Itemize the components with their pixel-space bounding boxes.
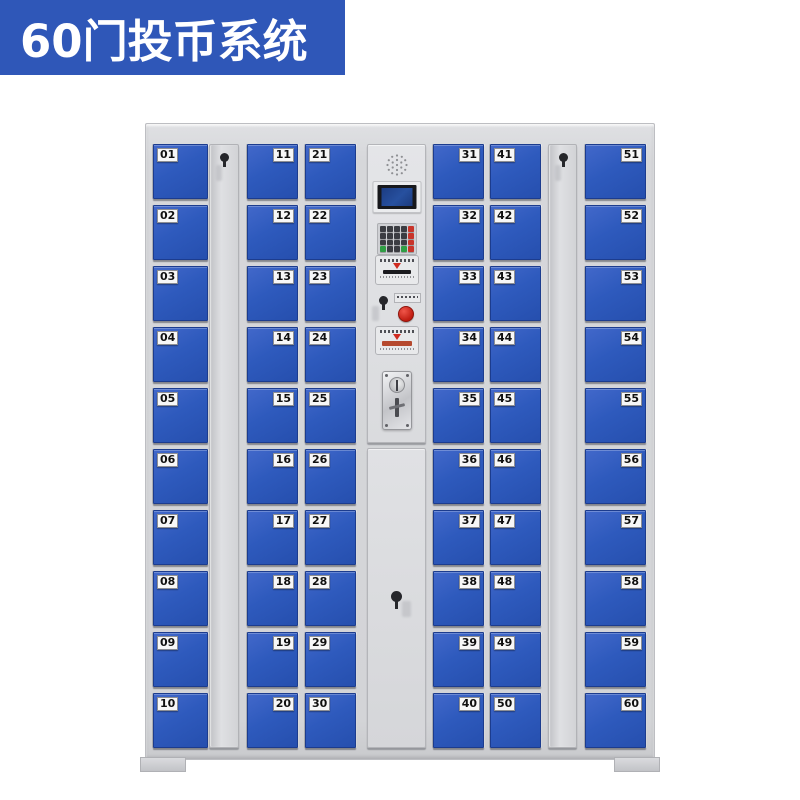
- screw-icon: [385, 424, 388, 427]
- screw-icon: [406, 424, 409, 427]
- locker-door-30[interactable]: 30: [305, 693, 356, 748]
- product-image: 60门投币系统 01020304050607080910 11121314151…: [0, 0, 800, 800]
- keypad-key[interactable]: [394, 226, 400, 232]
- door-number-label: 06: [157, 453, 178, 467]
- door-number-label: 17: [273, 514, 294, 528]
- locker-door-02[interactable]: 02: [153, 205, 208, 260]
- door-number-label: 50: [494, 697, 515, 711]
- coin-slot-knob[interactable]: [389, 377, 405, 393]
- locker-door-38[interactable]: 38: [433, 571, 484, 626]
- locker-door-17[interactable]: 17: [247, 510, 298, 565]
- door-number-label: 10: [157, 697, 178, 711]
- door-number-label: 46: [494, 453, 515, 467]
- door-number-label: 30: [309, 697, 330, 711]
- door-number-label: 02: [157, 209, 178, 223]
- down-arrow-icon: [393, 263, 401, 269]
- door-number-label: 22: [309, 209, 330, 223]
- keypad-key[interactable]: [401, 233, 407, 239]
- product-banner: 60门投币系统: [0, 0, 345, 75]
- locker-door-05[interactable]: 05: [153, 388, 208, 443]
- locker-door-27[interactable]: 27: [305, 510, 356, 565]
- door-number-label: 45: [494, 392, 515, 406]
- sticker-subtext: [380, 276, 414, 278]
- locker-door-18[interactable]: 18: [247, 571, 298, 626]
- locker-door-41[interactable]: 41: [490, 144, 541, 199]
- door-column-5: 41424344454647484950: [490, 144, 541, 748]
- keypad-key[interactable]: [408, 240, 414, 246]
- door-number-label: 09: [157, 636, 178, 650]
- door-number-label: 53: [621, 270, 642, 284]
- locker-door-48[interactable]: 48: [490, 571, 541, 626]
- door-number-label: 25: [309, 392, 330, 406]
- locker-door-16[interactable]: 16: [247, 449, 298, 504]
- locker-door-24[interactable]: 24: [305, 327, 356, 382]
- keypad-key[interactable]: [387, 226, 393, 232]
- door-number-label: 60: [621, 697, 642, 711]
- door-number-label: 29: [309, 636, 330, 650]
- keypad-key[interactable]: [408, 246, 414, 252]
- keypad-key[interactable]: [380, 246, 386, 252]
- locker-door-42[interactable]: 42: [490, 205, 541, 260]
- locker-door-54[interactable]: 54: [585, 327, 646, 382]
- lcd-display: [372, 181, 421, 213]
- door-number-label: 26: [309, 453, 330, 467]
- door-number-label: 47: [494, 514, 515, 528]
- sticker-text: [397, 296, 418, 298]
- door-number-label: 56: [621, 453, 642, 467]
- locker-door-26[interactable]: 26: [305, 449, 356, 504]
- panel-lock-row: [368, 292, 425, 326]
- control-column: [367, 144, 426, 748]
- card-slot[interactable]: [383, 270, 411, 274]
- keypad-key[interactable]: [394, 246, 400, 252]
- keyhole-icon[interactable]: [559, 153, 568, 162]
- keypad-key[interactable]: [380, 226, 386, 232]
- locker-door-60[interactable]: 60: [585, 693, 646, 748]
- locker-door-43[interactable]: 43: [490, 266, 541, 321]
- locker-door-11[interactable]: 11: [247, 144, 298, 199]
- door-number-label: 08: [157, 575, 178, 589]
- door-column-6: 51525354555657585960: [585, 144, 646, 748]
- keypad-key[interactable]: [394, 233, 400, 239]
- screw-icon: [406, 374, 409, 377]
- locker-door-51[interactable]: 51: [585, 144, 646, 199]
- locker-door-12[interactable]: 12: [247, 205, 298, 260]
- hanging-key: [372, 306, 379, 321]
- door-number-label: 59: [621, 636, 642, 650]
- locker-door-55[interactable]: 55: [585, 388, 646, 443]
- sticker-red-strip: [382, 341, 412, 346]
- locker-door-35[interactable]: 35: [433, 388, 484, 443]
- keypad-key[interactable]: [401, 226, 407, 232]
- locker-door-58[interactable]: 58: [585, 571, 646, 626]
- keyhole-icon[interactable]: [220, 153, 229, 162]
- keypad-key[interactable]: [387, 246, 393, 252]
- door-number-label: 55: [621, 392, 642, 406]
- door-column-2: 11121314151617181920: [247, 144, 298, 748]
- door-number-label: 41: [494, 148, 515, 162]
- door-number-label: 33: [459, 270, 480, 284]
- locker-door-19[interactable]: 19: [247, 632, 298, 687]
- locker-door-07[interactable]: 07: [153, 510, 208, 565]
- button-label-sticker: [394, 293, 421, 303]
- locker-door-14[interactable]: 14: [247, 327, 298, 382]
- door-number-label: 28: [309, 575, 330, 589]
- door-number-label: 54: [621, 331, 642, 345]
- keypad-key[interactable]: [408, 233, 414, 239]
- side-lock-panel-right: [548, 144, 577, 748]
- instruction-sticker: [375, 326, 419, 355]
- keypad-key[interactable]: [380, 240, 386, 246]
- control-panel: [367, 144, 426, 443]
- door-number-label: 12: [273, 209, 294, 223]
- screw-icon: [385, 374, 388, 377]
- keypad-key[interactable]: [408, 226, 414, 232]
- speaker-grill-icon: [384, 152, 410, 178]
- door-number-label: 14: [273, 331, 294, 345]
- door-number-label: 48: [494, 575, 515, 589]
- lcd-bezel: [377, 185, 416, 209]
- door-number-label: 43: [494, 270, 515, 284]
- cabinet-foot-right: [614, 757, 660, 772]
- locker-door-40[interactable]: 40: [433, 693, 484, 748]
- locker-cabinet: 01020304050607080910 1112131415161718192…: [145, 123, 655, 760]
- door-number-label: 52: [621, 209, 642, 223]
- door-number-label: 51: [621, 148, 642, 162]
- door-number-label: 04: [157, 331, 178, 345]
- door-number-label: 24: [309, 331, 330, 345]
- door-column-1: 01020304050607080910: [153, 144, 208, 748]
- door-number-label: 11: [273, 148, 294, 162]
- coin-acceptor[interactable]: [382, 371, 412, 430]
- hanging-key: [216, 165, 222, 181]
- hanging-key: [402, 601, 411, 617]
- lcd-screen: [381, 188, 412, 206]
- hanging-key: [555, 165, 561, 181]
- sticker-text: [380, 330, 414, 333]
- keypad-key[interactable]: [387, 240, 393, 246]
- door-number-label: 23: [309, 270, 330, 284]
- locker-door-20[interactable]: 20: [247, 693, 298, 748]
- locker-door-34[interactable]: 34: [433, 327, 484, 382]
- locker-door-23[interactable]: 23: [305, 266, 356, 321]
- banner-title: 60门投币系统: [20, 5, 308, 70]
- locker-door-10[interactable]: 10: [153, 693, 208, 748]
- locker-door-52[interactable]: 52: [585, 205, 646, 260]
- door-number-label: 01: [157, 148, 178, 162]
- locker-door-31[interactable]: 31: [433, 144, 484, 199]
- locker-door-44[interactable]: 44: [490, 327, 541, 382]
- locker-door-06[interactable]: 06: [153, 449, 208, 504]
- locker-door-37[interactable]: 37: [433, 510, 484, 565]
- door-number-label: 03: [157, 270, 178, 284]
- door-number-label: 34: [459, 331, 480, 345]
- locker-door-01[interactable]: 01: [153, 144, 208, 199]
- door-number-label: 37: [459, 514, 480, 528]
- door-number-label: 58: [621, 575, 642, 589]
- side-lock-panel-left: [209, 144, 239, 748]
- door-number-label: 07: [157, 514, 178, 528]
- door-number-label: 15: [273, 392, 294, 406]
- door-number-label: 40: [459, 697, 480, 711]
- locker-door-53[interactable]: 53: [585, 266, 646, 321]
- door-number-label: 31: [459, 148, 480, 162]
- card-reader[interactable]: [375, 255, 419, 285]
- service-door[interactable]: [367, 448, 426, 748]
- locker-door-50[interactable]: 50: [490, 693, 541, 748]
- door-number-label: 44: [494, 331, 515, 345]
- locker-door-47[interactable]: 47: [490, 510, 541, 565]
- door-column-4: 31323334353637383940: [433, 144, 484, 748]
- keypad-key[interactable]: [394, 240, 400, 246]
- door-number-label: 57: [621, 514, 642, 528]
- locker-door-22[interactable]: 22: [305, 205, 356, 260]
- locker-door-29[interactable]: 29: [305, 632, 356, 687]
- down-arrow-icon: [393, 334, 401, 340]
- locker-door-09[interactable]: 09: [153, 632, 208, 687]
- door-number-label: 38: [459, 575, 480, 589]
- door-number-label: 32: [459, 209, 480, 223]
- locker-door-04[interactable]: 04: [153, 327, 208, 382]
- door-column-3: 21222324252627282930: [305, 144, 356, 748]
- locker-door-56[interactable]: 56: [585, 449, 646, 504]
- locker-door-28[interactable]: 28: [305, 571, 356, 626]
- locker-door-21[interactable]: 21: [305, 144, 356, 199]
- door-number-label: 20: [273, 697, 294, 711]
- cabinet-foot-left: [140, 757, 186, 772]
- door-number-label: 13: [273, 270, 294, 284]
- keypad-key[interactable]: [401, 246, 407, 252]
- locker-door-59[interactable]: 59: [585, 632, 646, 687]
- door-number-label: 36: [459, 453, 480, 467]
- red-button[interactable]: [398, 306, 414, 322]
- door-number-label: 42: [494, 209, 515, 223]
- sticker-subtext: [380, 348, 414, 350]
- door-number-label: 16: [273, 453, 294, 467]
- keyhole-icon[interactable]: [391, 591, 402, 602]
- door-number-label: 27: [309, 514, 330, 528]
- keypad-key[interactable]: [387, 233, 393, 239]
- locker-door-03[interactable]: 03: [153, 266, 208, 321]
- locker-door-46[interactable]: 46: [490, 449, 541, 504]
- door-number-label: 21: [309, 148, 330, 162]
- locker-door-08[interactable]: 08: [153, 571, 208, 626]
- door-number-label: 18: [273, 575, 294, 589]
- locker-door-49[interactable]: 49: [490, 632, 541, 687]
- locker-door-45[interactable]: 45: [490, 388, 541, 443]
- door-number-label: 05: [157, 392, 178, 406]
- locker-door-15[interactable]: 15: [247, 388, 298, 443]
- locker-door-39[interactable]: 39: [433, 632, 484, 687]
- locker-door-25[interactable]: 25: [305, 388, 356, 443]
- locker-door-36[interactable]: 36: [433, 449, 484, 504]
- sticker-text: [380, 259, 414, 262]
- keypad-key[interactable]: [401, 240, 407, 246]
- door-number-label: 19: [273, 636, 294, 650]
- locker-door-33[interactable]: 33: [433, 266, 484, 321]
- locker-door-57[interactable]: 57: [585, 510, 646, 565]
- door-number-label: 35: [459, 392, 480, 406]
- locker-door-32[interactable]: 32: [433, 205, 484, 260]
- door-number-label: 39: [459, 636, 480, 650]
- keypad-key[interactable]: [380, 233, 386, 239]
- door-number-label: 49: [494, 636, 515, 650]
- locker-door-13[interactable]: 13: [247, 266, 298, 321]
- keyhole-icon[interactable]: [379, 296, 388, 305]
- numeric-keypad[interactable]: [377, 223, 417, 255]
